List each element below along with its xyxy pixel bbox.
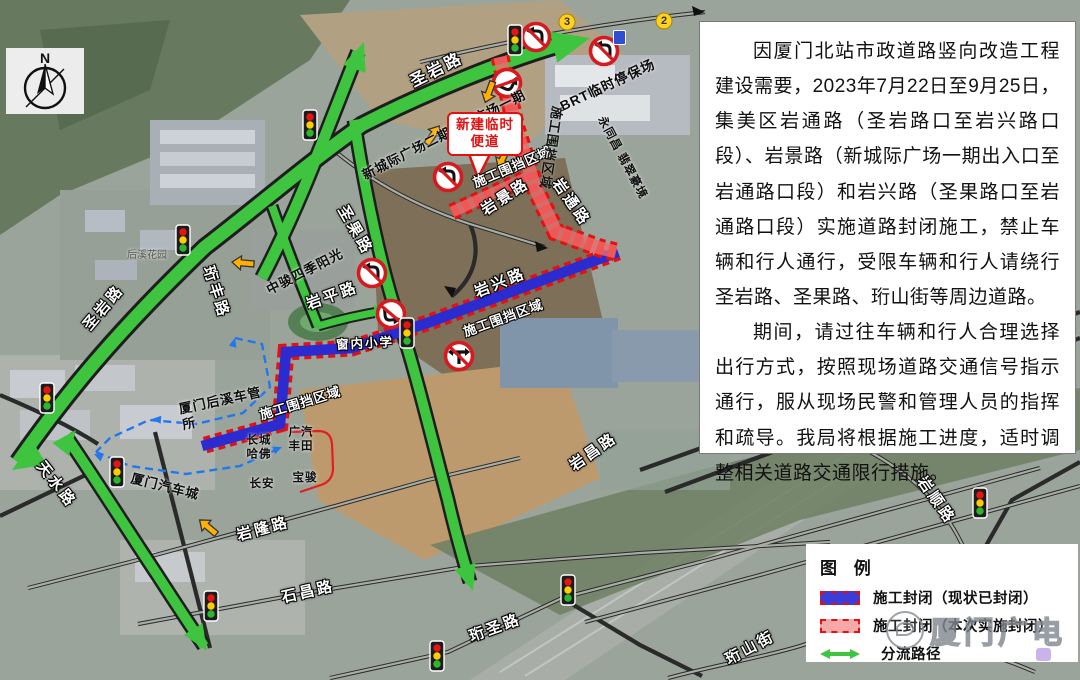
- broadcaster-watermark: 厦门广电: [886, 608, 1066, 652]
- legend-swatch-blue: [820, 591, 860, 605]
- map-corner-badge: [1036, 648, 1051, 661]
- callout-line2: 便道: [451, 134, 519, 151]
- legend-green-arrow: [820, 647, 860, 661]
- bus-stop-icon: [613, 30, 626, 45]
- legend-label-closed-now: 施工封闭（现状已封闭）: [873, 587, 1038, 608]
- notice-paragraph-1: 因厦门北站市政道路竖向改造工程建设需要，2023年7月22日至9月25日，集美区…: [715, 34, 1060, 315]
- callout-line1: 新建临时: [451, 117, 519, 134]
- legend-title: 图 例: [820, 554, 1064, 579]
- temporary-road-callout: 新建临时 便道: [447, 112, 523, 156]
- watermark-logo-icon: [886, 611, 924, 649]
- notice-paragraph-2: 期间，请过往车辆和行人合理选择出行方式，按照现场道路交通信号指示通行，服从现场民…: [715, 315, 1060, 491]
- legend-swatch-pink: [820, 619, 860, 633]
- traffic-notice-map: N 3 2 圣岩路 圣岩路 天水路 珩丰路 圣果路 岩平路 岩兴路 岩景路 岩通…: [0, 0, 1080, 680]
- notice-text-panel: 因厦门北站市政道路竖向改造工程建设需要，2023年7月22日至9月25日，集美区…: [699, 21, 1076, 454]
- legend-item-closed-now: 施工封闭（现状已封闭）: [820, 587, 1064, 608]
- watermark-text: 厦门广电: [930, 608, 1066, 652]
- compass-n-label: N: [40, 50, 50, 66]
